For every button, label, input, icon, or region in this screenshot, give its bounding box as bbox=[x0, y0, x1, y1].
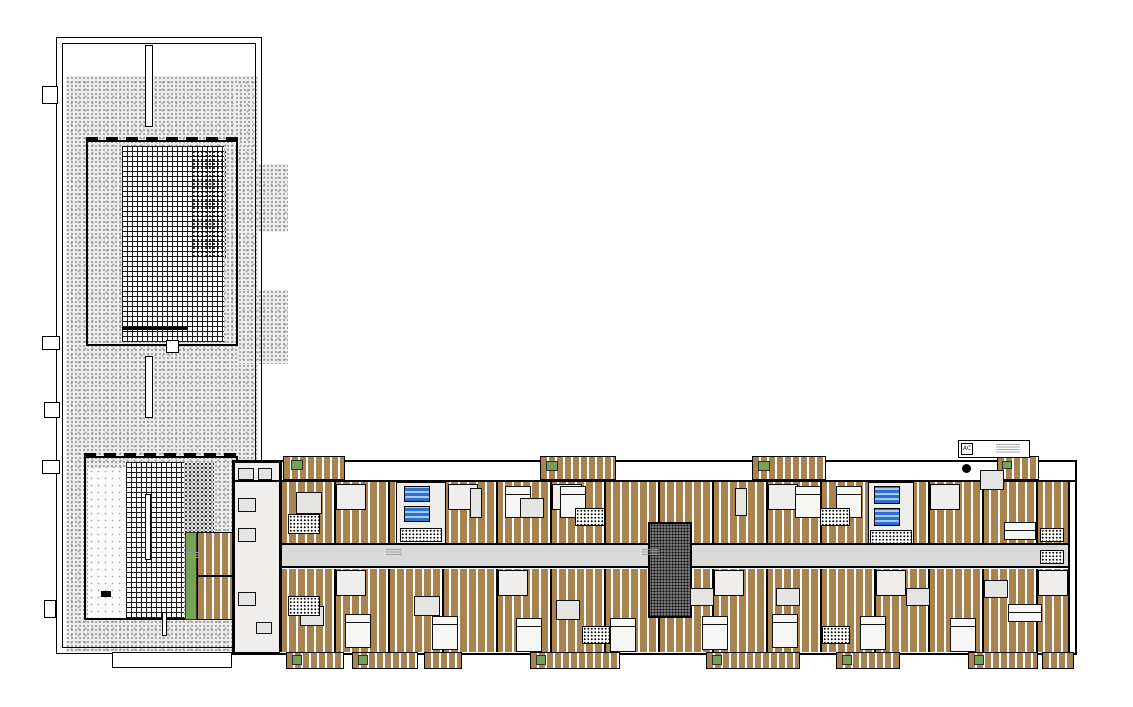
partition-wall bbox=[388, 482, 390, 544]
boundary-notch bbox=[44, 402, 60, 418]
balcony-planter bbox=[358, 655, 368, 665]
lower-block-dashed-wall bbox=[84, 453, 238, 457]
partition-wall bbox=[982, 482, 984, 544]
wall-stub-lower bbox=[145, 494, 151, 560]
south-balcony bbox=[424, 652, 462, 669]
partition-wall bbox=[928, 569, 930, 652]
bed bbox=[860, 616, 886, 650]
wardrobe bbox=[575, 508, 605, 526]
bed bbox=[345, 614, 371, 648]
wall-stub-north bbox=[145, 45, 153, 127]
bed bbox=[772, 614, 798, 648]
dining-table bbox=[984, 580, 1008, 598]
bed bbox=[1008, 604, 1042, 622]
bathroom bbox=[930, 484, 960, 510]
balcony-planter bbox=[712, 655, 722, 665]
bathroom bbox=[498, 570, 528, 596]
dining-table bbox=[776, 588, 800, 606]
bathroom bbox=[714, 570, 744, 596]
fixture bbox=[238, 468, 254, 480]
dining-table bbox=[296, 492, 322, 514]
bathroom bbox=[336, 484, 366, 510]
wardrobe bbox=[288, 514, 320, 534]
elevator-east-upper bbox=[874, 486, 900, 504]
sofa bbox=[470, 488, 482, 518]
bed bbox=[432, 616, 458, 650]
dining-table bbox=[414, 596, 440, 616]
ac-unit: AC bbox=[961, 443, 973, 455]
bed bbox=[1004, 522, 1036, 540]
wardrobe bbox=[820, 508, 850, 526]
wardrobe bbox=[582, 626, 610, 644]
dining-table bbox=[980, 470, 1004, 490]
sofa bbox=[735, 488, 747, 516]
wardrobe bbox=[822, 626, 850, 644]
upper-grate-dot-overlay bbox=[192, 150, 226, 258]
fixture bbox=[238, 592, 256, 606]
boundary-notch bbox=[44, 600, 56, 618]
stair-flight-west bbox=[400, 528, 442, 542]
lower-grate-dot-overlay bbox=[184, 462, 214, 532]
partition-wall bbox=[550, 569, 552, 652]
south-balcony bbox=[1042, 652, 1074, 669]
wardrobe bbox=[1040, 528, 1064, 542]
dining-table bbox=[906, 588, 930, 606]
tiny-annotation bbox=[386, 549, 402, 555]
north-facade-wall bbox=[234, 480, 1075, 482]
partition-wall bbox=[712, 482, 714, 544]
elevator-east-lower bbox=[874, 508, 900, 526]
tiny-annotation bbox=[642, 549, 658, 555]
bed bbox=[702, 616, 728, 650]
central-core bbox=[648, 522, 692, 618]
balcony-planter bbox=[536, 655, 546, 665]
bed bbox=[516, 618, 542, 652]
bed bbox=[795, 486, 821, 518]
upper-block-wall-segment bbox=[122, 327, 188, 330]
balcony-planter bbox=[842, 655, 852, 665]
east-partition bbox=[1068, 482, 1070, 652]
partition-wall bbox=[388, 569, 390, 652]
fixture bbox=[238, 528, 256, 542]
roof-hatch-box bbox=[166, 340, 179, 353]
dining-table bbox=[520, 498, 544, 518]
bathroom bbox=[336, 570, 366, 596]
roof-drain bbox=[101, 591, 111, 597]
stair-flight-east bbox=[870, 530, 912, 544]
roof-drain-dot bbox=[962, 464, 971, 473]
planter-strip bbox=[185, 532, 197, 620]
balcony-planter bbox=[974, 655, 984, 665]
west-partition bbox=[280, 462, 282, 652]
boundary-notch bbox=[42, 460, 60, 474]
elevator-west-lower bbox=[404, 506, 430, 522]
boundary-step-south bbox=[112, 652, 232, 668]
bathroom bbox=[876, 570, 906, 596]
upper-block-dashed-wall bbox=[86, 137, 238, 141]
partition-wall bbox=[496, 482, 498, 544]
tiny-annotation bbox=[996, 444, 1020, 453]
balcony-planter bbox=[291, 460, 303, 470]
partition-wall bbox=[766, 569, 768, 652]
wardrobe bbox=[288, 596, 320, 616]
wardrobe bbox=[1040, 550, 1064, 564]
boundary-notch bbox=[42, 86, 58, 104]
bathroom bbox=[768, 484, 798, 510]
lower-skylight-grate bbox=[126, 462, 184, 618]
bed bbox=[950, 618, 976, 652]
dining-table bbox=[690, 588, 714, 606]
balcony-planter bbox=[292, 655, 302, 665]
fixture bbox=[256, 622, 272, 634]
bathroom bbox=[1038, 570, 1068, 596]
tiny-annotation bbox=[186, 552, 200, 558]
wall-stub-mid bbox=[145, 356, 153, 418]
balcony-planter bbox=[546, 461, 558, 471]
floor-plan-canvas: AC bbox=[0, 0, 1133, 707]
dining-table bbox=[556, 600, 580, 620]
elevator-west-upper bbox=[404, 486, 430, 502]
fixture bbox=[258, 468, 272, 480]
balcony-planter bbox=[1002, 461, 1012, 469]
balcony-planter bbox=[758, 461, 770, 471]
fixture bbox=[238, 498, 256, 512]
partition-wall bbox=[1036, 482, 1038, 544]
wall-stub-south bbox=[162, 612, 167, 636]
boundary-notch bbox=[42, 336, 60, 350]
bed bbox=[610, 618, 636, 652]
